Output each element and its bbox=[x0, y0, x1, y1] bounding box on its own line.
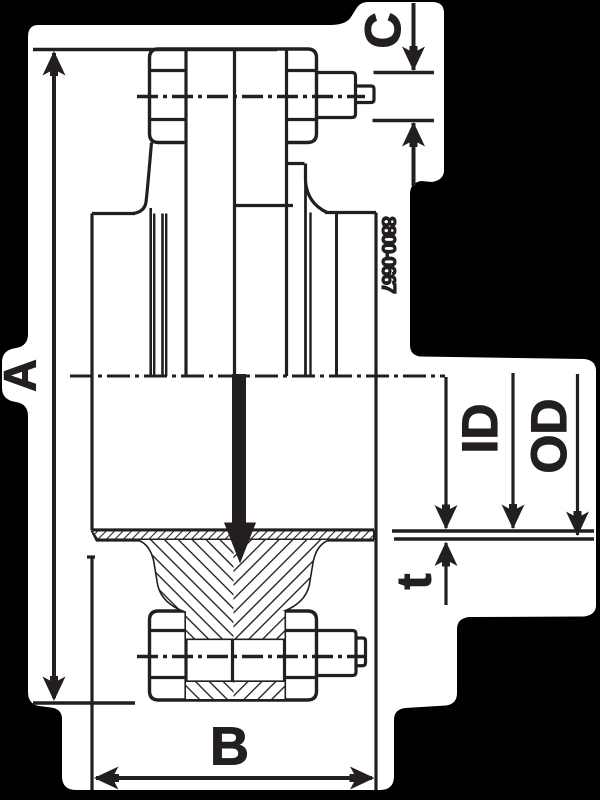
svg-text:ID: ID bbox=[452, 404, 508, 454]
svg-text:t: t bbox=[389, 573, 442, 589]
svg-text:OD: OD bbox=[521, 399, 577, 474]
svg-text:8800-0667: 8800-0667 bbox=[377, 216, 399, 294]
svg-text:A: A bbox=[0, 359, 46, 392]
svg-text:B: B bbox=[210, 717, 249, 777]
svg-text:C: C bbox=[355, 12, 411, 48]
